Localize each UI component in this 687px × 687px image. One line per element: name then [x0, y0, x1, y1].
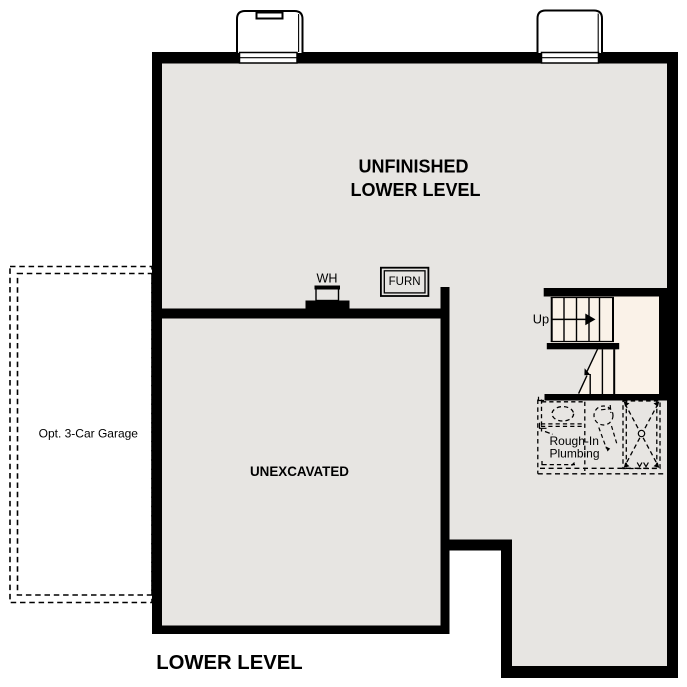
svg-text:WH: WH — [317, 272, 338, 286]
svg-text:FURN: FURN — [389, 276, 421, 288]
svg-text:LOWER LEVEL: LOWER LEVEL — [156, 652, 302, 674]
svg-text:UNEXCAVATED: UNEXCAVATED — [250, 464, 349, 479]
svg-text:UNFINISHED: UNFINISHED — [358, 156, 468, 176]
svg-text:Up: Up — [533, 312, 549, 327]
svg-text:LOWER LEVEL: LOWER LEVEL — [351, 180, 481, 200]
svg-text:Opt. 3-Car Garage: Opt. 3-Car Garage — [39, 427, 139, 441]
svg-text:Plumbing: Plumbing — [550, 447, 600, 461]
